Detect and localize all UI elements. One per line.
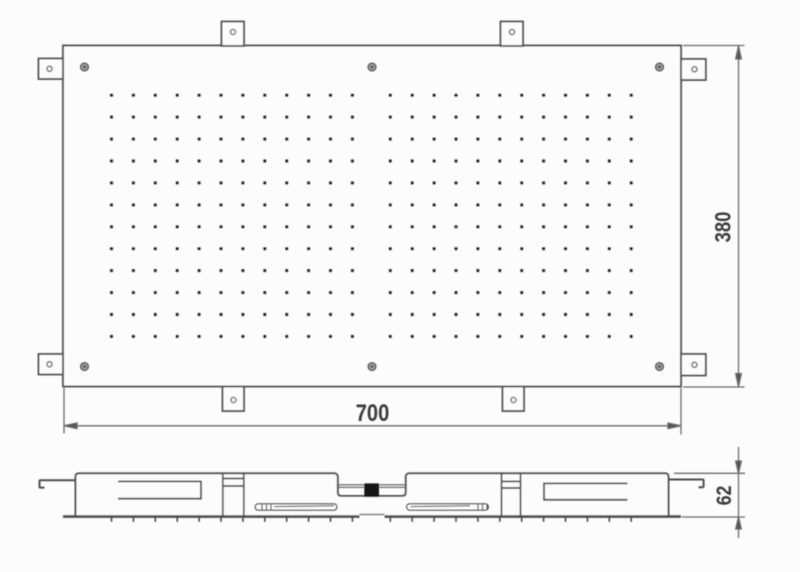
svg-text:380: 380 bbox=[711, 212, 736, 243]
svg-text:62: 62 bbox=[712, 485, 736, 505]
svg-text:700: 700 bbox=[356, 399, 390, 426]
